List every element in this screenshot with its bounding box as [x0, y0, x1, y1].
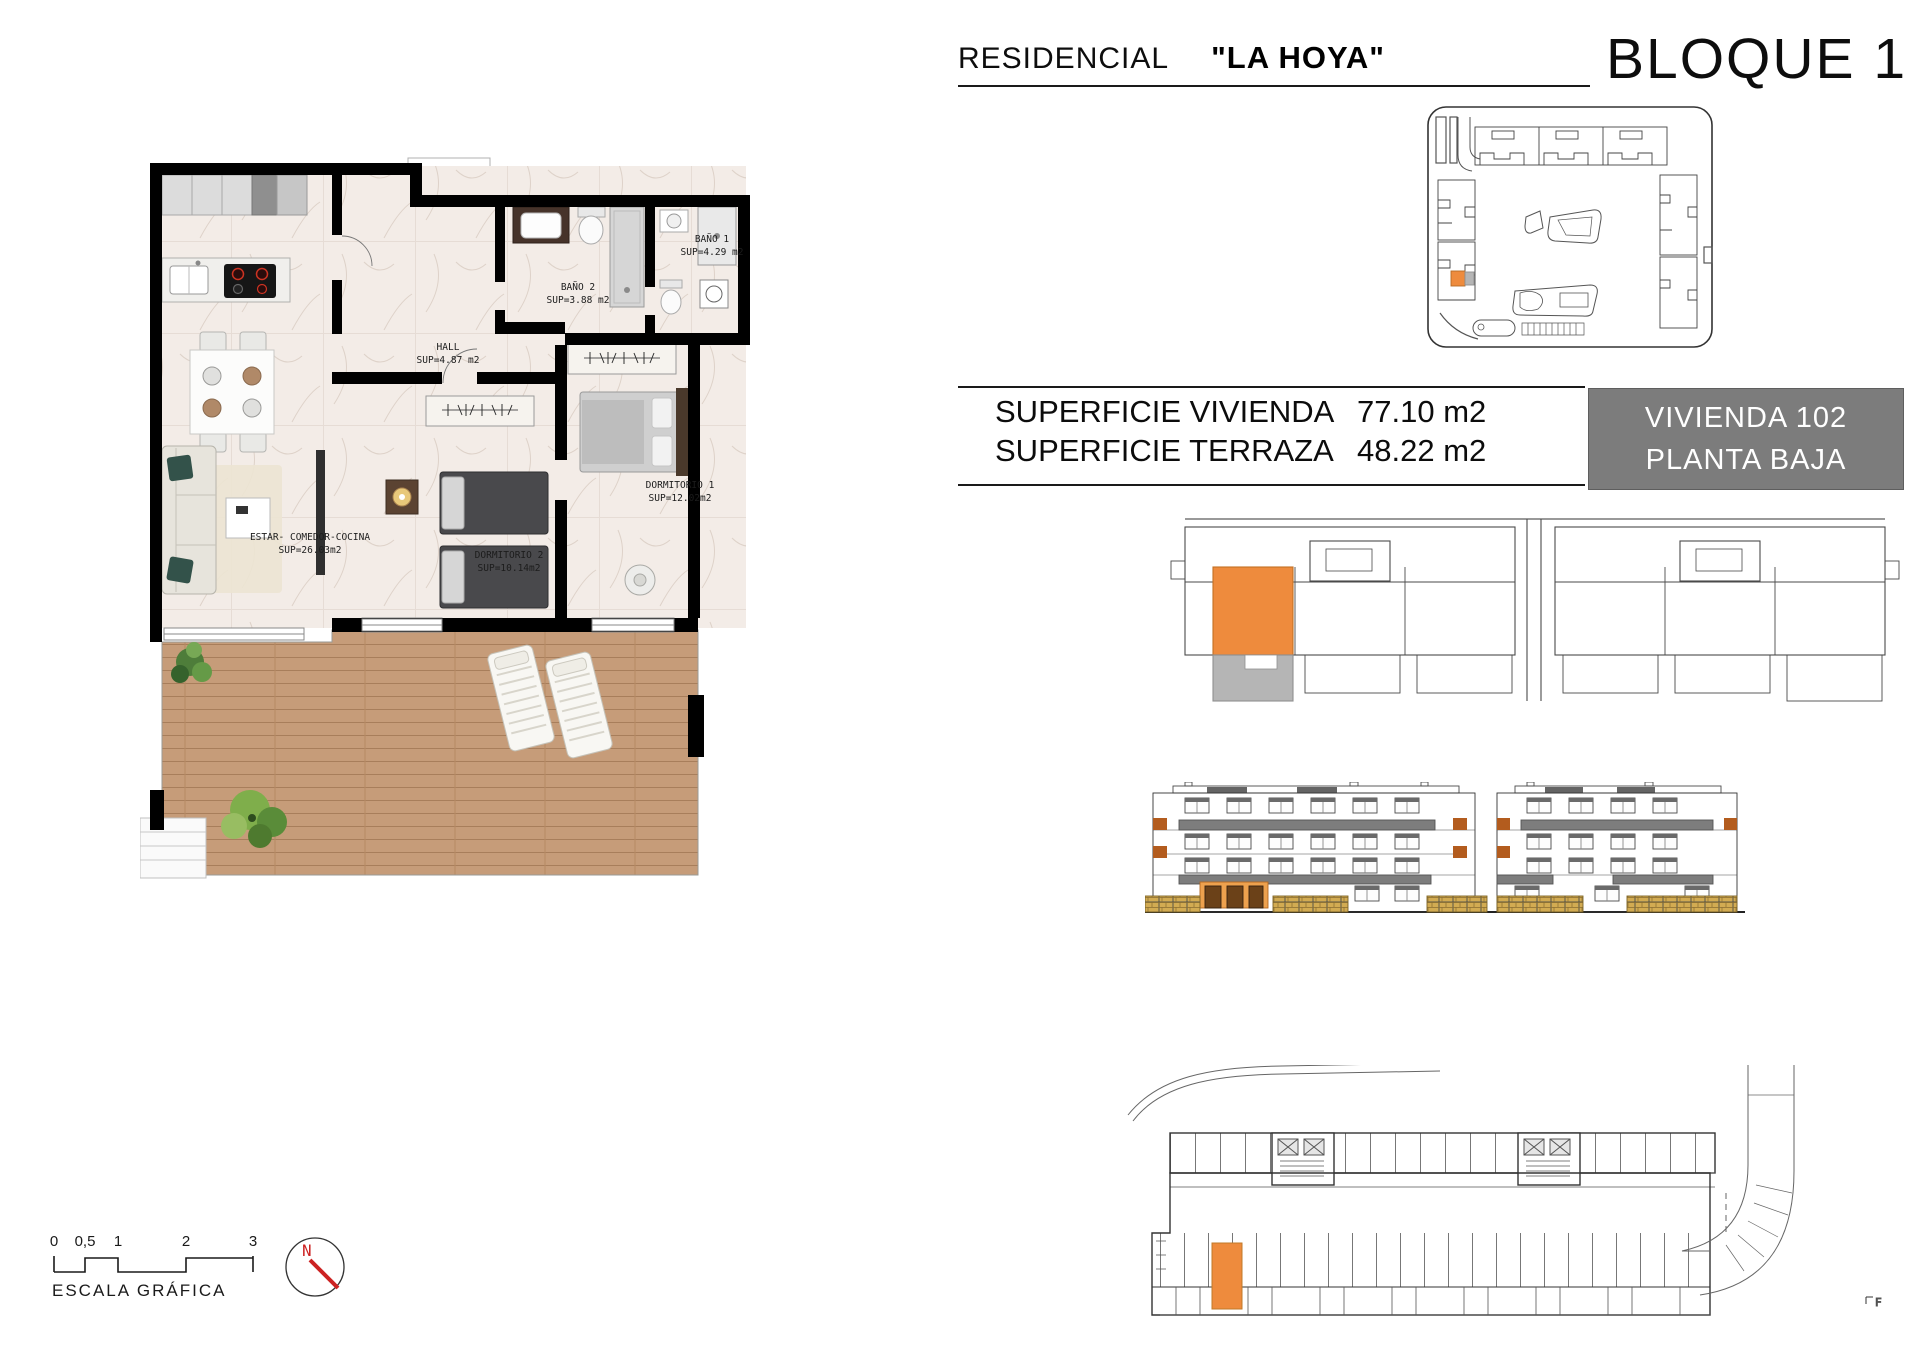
site-buildings-top: [1475, 127, 1667, 165]
site-pool: [1473, 210, 1601, 336]
floor-key-right-wing: [1555, 527, 1899, 701]
site-buildings-right: [1660, 175, 1697, 328]
site-highlight-unit: [1451, 271, 1465, 286]
surface-terraza-label: SUPERFICIE TERRAZA: [995, 433, 1357, 469]
cooktop-icon: [224, 264, 276, 298]
elevation-left-building: [1145, 782, 1487, 912]
compass: N: [280, 1230, 352, 1306]
room-label-estar: ESTAR- COMEDOR-COCINA: [250, 532, 370, 543]
orange-accent: [1453, 818, 1467, 830]
orange-accent: [1153, 846, 1167, 858]
header: RESIDENCIAL "LA HOYA": [958, 40, 1385, 76]
room-label-bano1: BAÑO 1: [695, 234, 730, 245]
fence-wall: [1427, 896, 1487, 912]
room-area-bano1: SUP=4.29 m2: [681, 247, 744, 258]
terrace-deck: [162, 630, 698, 875]
table-rule-top: [958, 386, 1585, 388]
nightstand-lamp: [386, 480, 418, 514]
unit-floor: PLANTA BAJA: [1646, 439, 1847, 481]
table-row: SUPERFICIE VIVIENDA 77.10 m2: [958, 392, 1585, 431]
highlighted-unit: [1213, 567, 1293, 655]
surface-vivienda-label: SUPERFICIE VIVIENDA: [995, 394, 1357, 430]
orange-accent: [1453, 846, 1467, 858]
floor-key-joint: [1527, 519, 1541, 701]
fence-wall: [1627, 896, 1737, 912]
toilet-icon: [578, 207, 605, 244]
room-label-bano2: BAÑO 2: [561, 282, 595, 293]
scale-bar-caption: ESCALA GRÁFICA: [52, 1281, 226, 1300]
orange-accent: [1153, 818, 1167, 830]
block-title: BLOQUE 1: [1606, 26, 1907, 92]
toilet-icon: [660, 280, 682, 314]
room-area-dorm2: SUP=10.14m2: [478, 563, 541, 574]
scale-tick: 1: [114, 1233, 122, 1250]
north-label: N: [302, 1241, 312, 1260]
balcony-band: [1497, 875, 1553, 884]
site-boundary: [1428, 107, 1712, 347]
unit-identifier-box: VIVIENDA 102 PLANTA BAJA: [1588, 388, 1904, 490]
highlighted-parking-unit: [1212, 1243, 1242, 1309]
floor-key-left-wing: [1171, 527, 1515, 701]
floor-key-schematic: [930, 505, 1910, 720]
elevator-core: [1518, 1133, 1580, 1185]
tv-bench: [316, 450, 325, 575]
header-underline: [958, 85, 1590, 87]
compass-needle-icon: [310, 1260, 338, 1288]
scale-tick: 0: [50, 1233, 58, 1250]
scale-tick: 0,5: [75, 1233, 96, 1250]
bed-icon: [440, 472, 548, 534]
garage-building: [1152, 1133, 1715, 1315]
scale-bar: 0 0,5 1 2 3 ESCALA GRÁFICA: [40, 1230, 310, 1305]
scale-bar-steps: [54, 1256, 253, 1272]
washing-machine-icon: [700, 280, 728, 308]
site-plan: [1420, 95, 1720, 355]
shower-icon: [610, 207, 644, 307]
table-rule-bottom: [958, 484, 1585, 486]
side-table-plant: [634, 574, 646, 586]
apartment-floorplan: BAÑO 1 SUP=4.29 m2 BAÑO 2 SUP=3.88 m2 HA…: [140, 150, 760, 880]
corner-mark: F: [1866, 1296, 1882, 1309]
sofa: [162, 446, 216, 594]
balcony-band: [1613, 875, 1713, 884]
site-buildings-left: [1438, 180, 1475, 300]
basin: [521, 213, 561, 238]
room-label-dorm1: DORMITORIO 1: [646, 480, 715, 491]
balcony-band: [1179, 820, 1435, 830]
surface-table: SUPERFICIE VIVIENDA 77.10 m2 SUPERFICIE …: [958, 392, 1585, 470]
table-row: SUPERFICIE TERRAZA 48.22 m2: [958, 431, 1585, 470]
table-deco: [236, 506, 248, 514]
exterior-stairs: [140, 818, 206, 878]
orange-accent: [1497, 818, 1510, 830]
surface-vivienda-value: 77.10 m2: [1357, 394, 1486, 430]
wardrobe-icon: [426, 396, 534, 426]
residencial-label: RESIDENCIAL: [958, 42, 1169, 76]
balcony-band: [1521, 820, 1713, 830]
fence-wall: [1273, 896, 1348, 912]
fence-wall: [1497, 896, 1583, 912]
room-area-bano2: SUP=3.88 m2: [547, 295, 610, 306]
garage-plan: F: [920, 1065, 1920, 1355]
orange-accent: [1497, 846, 1510, 858]
project-name: "LA HOYA": [1211, 40, 1385, 76]
kitchen-cabinets: [162, 175, 307, 215]
room-label-hall: HALL: [437, 342, 460, 353]
room-area-estar: SUP=26.03m2: [279, 545, 342, 556]
corner-mark-label: F: [1875, 1296, 1882, 1309]
building-elevations: [1145, 782, 1745, 937]
room-area-hall: SUP=4.87 m2: [417, 355, 480, 366]
scale-tick: 2: [182, 1233, 190, 1250]
unit-number: VIVIENDA 102: [1645, 397, 1847, 439]
scale-tick: 3: [249, 1233, 257, 1250]
fence-wall: [1145, 896, 1200, 912]
plan-sheet: RESIDENCIAL "LA HOYA" BLOQUE 1: [0, 0, 1920, 1361]
orange-accent: [1724, 818, 1737, 830]
elevation-right-building: [1497, 782, 1737, 912]
double-bed-icon: [580, 388, 688, 476]
sink-icon: [170, 261, 208, 295]
kitchen-island: [162, 258, 290, 302]
room-area-dorm1: SUP=12.02m2: [649, 493, 712, 504]
dining-set: [190, 332, 274, 452]
site-highlight-terrace: [1465, 272, 1474, 285]
room-label-dorm2: DORMITORIO 2: [475, 550, 544, 561]
elevator-core: [1272, 1133, 1334, 1185]
wardrobe-icon: [568, 344, 676, 374]
boundary-road: [1128, 1065, 1440, 1121]
surface-terraza-value: 48.22 m2: [1357, 433, 1486, 469]
